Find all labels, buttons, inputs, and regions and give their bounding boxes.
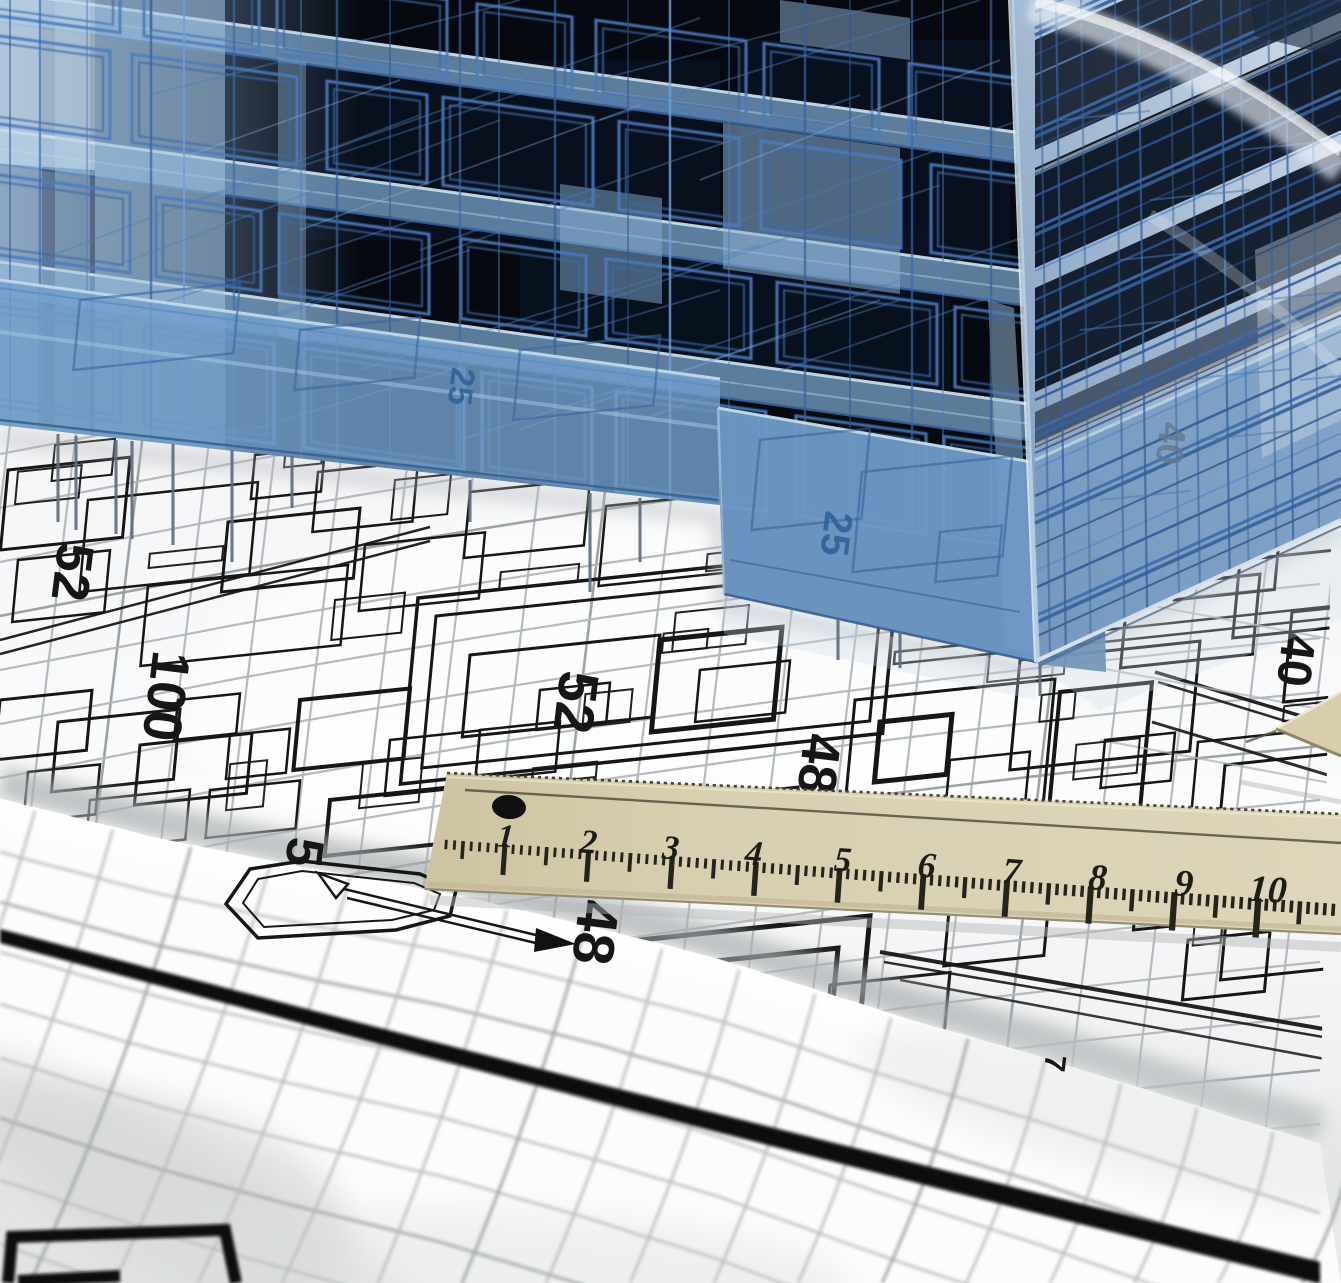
svg-text:5: 5	[833, 840, 853, 880]
svg-text:52: 52	[40, 540, 105, 604]
svg-text:9: 9	[1173, 862, 1195, 905]
svg-text:6: 6	[916, 845, 937, 886]
svg-text:52: 52	[541, 668, 611, 738]
svg-text:3: 3	[660, 829, 681, 867]
svg-text:10: 10	[1247, 868, 1288, 913]
svg-text:25: 25	[811, 509, 860, 559]
svg-text:1: 1	[496, 818, 515, 855]
svg-text:25: 25	[440, 365, 482, 407]
svg-text:100: 100	[131, 648, 202, 745]
svg-text:2: 2	[578, 823, 599, 861]
svg-text:40: 40	[1146, 420, 1193, 467]
svg-text:8: 8	[1087, 857, 1108, 899]
svg-text:4: 4	[743, 833, 764, 873]
svg-text:48: 48	[785, 731, 852, 798]
